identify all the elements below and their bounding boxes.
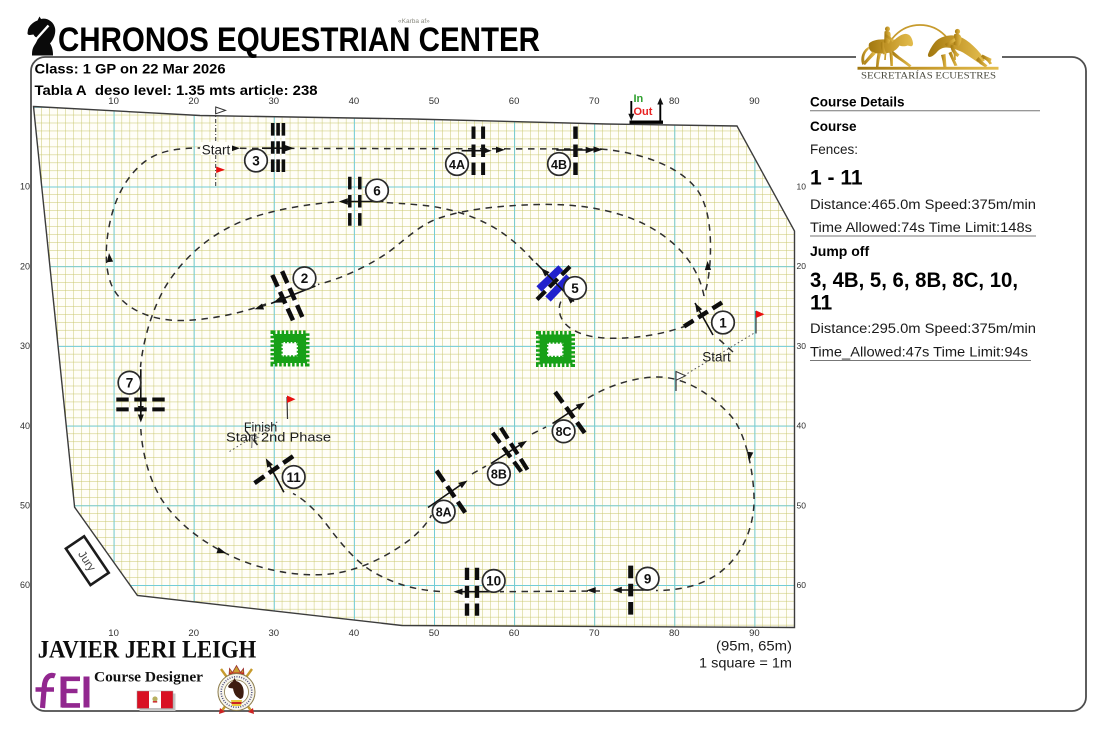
svg-text:SECRETARÍAS ECUESTRES: SECRETARÍAS ECUESTRES [861, 71, 996, 81]
svg-text:4A: 4A [449, 158, 465, 172]
svg-text:5: 5 [571, 281, 579, 296]
svg-text:30: 30 [797, 341, 807, 351]
svg-text:7: 7 [126, 376, 134, 391]
svg-text:(95m, 65m): (95m, 65m) [716, 639, 792, 654]
svg-text:40: 40 [20, 421, 30, 431]
svg-text:10: 10 [20, 182, 30, 192]
svg-text:20: 20 [20, 261, 30, 271]
svg-text:11: 11 [287, 470, 302, 485]
svg-text:Course Details: Course Details [810, 95, 905, 110]
svg-text:«Karba af»: «Karba af» [398, 18, 430, 25]
svg-text:40: 40 [349, 628, 360, 639]
svg-text:60: 60 [509, 628, 520, 639]
svg-text:30: 30 [269, 96, 280, 107]
svg-text:Start 2nd Phase: Start 2nd Phase [226, 431, 331, 445]
svg-text:6: 6 [373, 183, 381, 198]
svg-text:CHRONOS EQUESTRIAN CENTER: CHRONOS EQUESTRIAN CENTER [58, 21, 540, 59]
svg-text:Time Allowed:74s Time Limit:14: Time Allowed:74s Time Limit:148s [810, 220, 1032, 235]
svg-text:Out: Out [634, 106, 653, 118]
svg-text:40: 40 [797, 421, 807, 431]
svg-text:30: 30 [269, 628, 280, 639]
svg-text:20: 20 [797, 261, 807, 271]
svg-text:90: 90 [749, 628, 760, 639]
svg-text:Jump off: Jump off [810, 243, 869, 259]
svg-text:9: 9 [644, 572, 652, 587]
svg-text:60: 60 [509, 96, 520, 107]
svg-text:Start: Start [702, 350, 731, 365]
svg-text:3, 4B, 5, 6, 8B, 8C, 10,: 3, 4B, 5, 6, 8B, 8C, 10, [810, 269, 1018, 292]
svg-text:Course Designer: Course Designer [94, 670, 204, 686]
svg-text:Start: Start [202, 143, 231, 158]
svg-text:40: 40 [349, 96, 360, 107]
svg-text:60: 60 [20, 580, 30, 590]
svg-text:Time_Allowed:47s Time Limit:94: Time_Allowed:47s Time Limit:94s [810, 345, 1028, 360]
svg-text:3: 3 [252, 153, 260, 168]
svg-text:8A: 8A [436, 505, 452, 519]
svg-text:10: 10 [108, 96, 119, 107]
svg-text:30: 30 [20, 341, 30, 351]
svg-text:10: 10 [486, 574, 501, 589]
svg-text:1 square = 1m: 1 square = 1m [699, 656, 792, 671]
svg-text:20: 20 [188, 96, 199, 107]
svg-text:1: 1 [719, 315, 727, 330]
svg-text:50: 50 [429, 96, 440, 107]
svg-text:70: 70 [589, 96, 600, 107]
svg-text:In: In [634, 93, 644, 105]
svg-text:90: 90 [749, 96, 760, 107]
svg-text:80: 80 [669, 628, 680, 639]
svg-text:50: 50 [429, 628, 440, 639]
svg-text:Distance:295.0m Speed:375m/min: Distance:295.0m Speed:375m/min [810, 321, 1036, 336]
svg-text:4B: 4B [551, 158, 567, 172]
svg-text:Fences:: Fences: [810, 142, 858, 157]
svg-text:Class: 1 GP on 22 Mar 2026: Class: 1 GP on 22 Mar 2026 [35, 61, 226, 77]
svg-text:Course: Course [810, 119, 857, 134]
svg-text:8B: 8B [491, 468, 507, 482]
svg-text:Distance:465.0m Speed:375m/min: Distance:465.0m Speed:375m/min [810, 197, 1036, 212]
svg-text:10: 10 [797, 182, 807, 192]
svg-text:50: 50 [797, 500, 807, 510]
svg-text:50: 50 [20, 501, 30, 511]
svg-text:11: 11 [810, 292, 833, 315]
svg-text:60: 60 [797, 580, 807, 590]
svg-text:JAVIER JERI LEIGH: JAVIER JERI LEIGH [38, 635, 257, 664]
svg-text:70: 70 [589, 628, 600, 639]
svg-text:1 - 11: 1 - 11 [810, 167, 863, 190]
svg-text:2: 2 [301, 271, 309, 286]
svg-text:8C: 8C [556, 425, 572, 439]
svg-text:80: 80 [669, 96, 680, 107]
